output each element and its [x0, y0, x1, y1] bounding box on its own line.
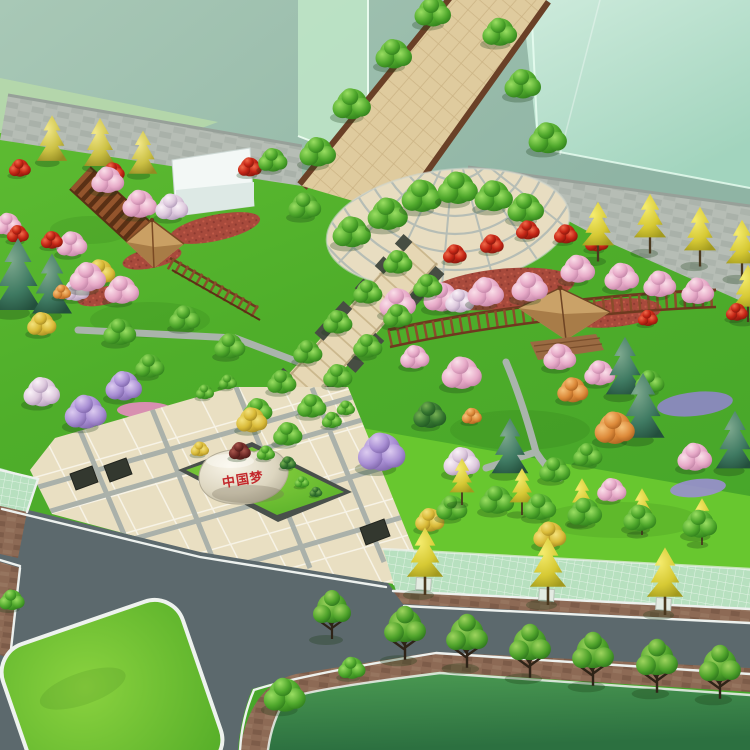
landscape-plan-rendering: 中国梦	[0, 0, 750, 750]
